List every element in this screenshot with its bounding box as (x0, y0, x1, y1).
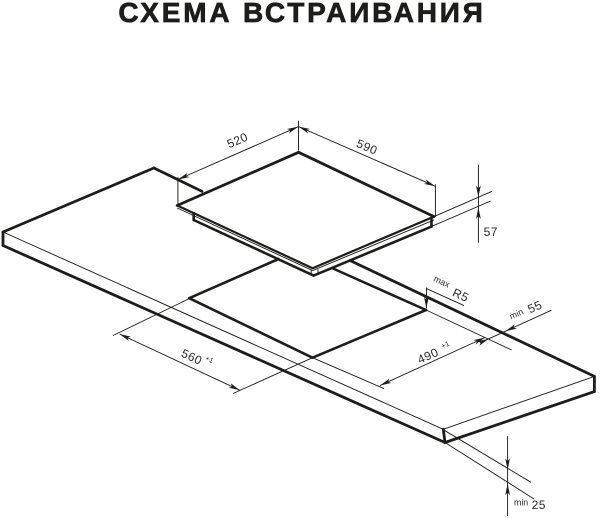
svg-text:25: 25 (532, 498, 546, 512)
svg-text:57: 57 (484, 225, 498, 239)
svg-text:max: max (432, 274, 452, 290)
svg-text:+1: +1 (440, 339, 451, 351)
svg-text:min: min (514, 497, 528, 507)
svg-text:55: 55 (526, 298, 545, 317)
svg-text:490: 490 (415, 345, 440, 367)
svg-text:+1: +1 (204, 354, 215, 366)
svg-text:min: min (508, 306, 525, 321)
svg-text:590: 590 (354, 136, 379, 157)
svg-text:R5: R5 (450, 285, 471, 305)
svg-text:560: 560 (179, 346, 204, 368)
svg-text:520: 520 (225, 130, 250, 151)
